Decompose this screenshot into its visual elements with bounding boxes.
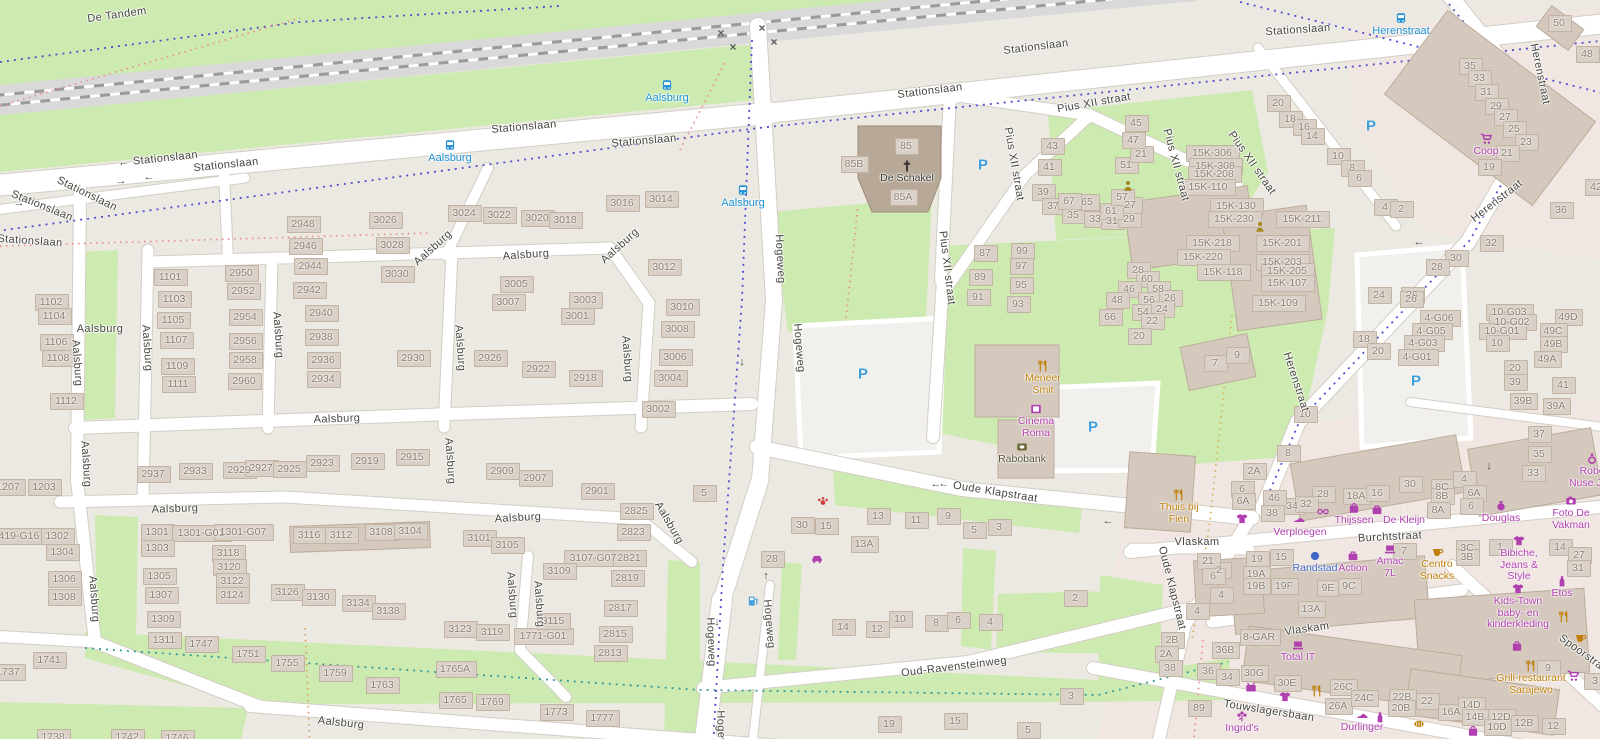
house-number: 2901 <box>585 485 608 497</box>
house-number: 1311 <box>153 634 176 646</box>
house-number: 9C <box>1342 580 1355 592</box>
poi-label: Foto DeVakman <box>1552 508 1590 531</box>
house-number: 2815 <box>603 628 626 640</box>
house-number: 1302 <box>45 530 68 542</box>
house-number: 41 <box>1043 161 1055 173</box>
house-number: 2918 <box>573 372 596 384</box>
street-label: Aalsburg <box>531 580 546 627</box>
street-label: Pius XII straat <box>1056 91 1131 116</box>
jewel-icon <box>1586 453 1599 466</box>
house-number: 15K-109 <box>1258 297 1298 309</box>
poi-label-line: Fien <box>1159 514 1198 526</box>
poi-label-line: Etos <box>1551 588 1572 600</box>
house-number: 3119 <box>481 626 504 638</box>
poi-label: RobeNuse Juw <box>1569 466 1600 489</box>
house-number: 3101 <box>467 532 490 544</box>
house-number: 2929 <box>227 464 250 476</box>
house-number: 1309 <box>151 613 174 625</box>
cup-icon <box>1431 546 1444 559</box>
cross-icon <box>901 160 914 173</box>
house-number: 85B <box>845 158 864 170</box>
bread-icon <box>1413 718 1426 731</box>
house-number: 3007 <box>496 296 519 308</box>
house-number: 12 <box>871 623 883 635</box>
house-number: 3 <box>996 521 1002 533</box>
poi-label: Thijssen <box>1334 515 1373 527</box>
house-number: 15K-211 <box>1283 213 1322 225</box>
house-number: 2A <box>1248 465 1261 477</box>
bus-stop-icon <box>737 184 750 197</box>
house-number: 60 <box>1141 273 1153 285</box>
house-number: 3130 <box>306 591 329 603</box>
house-number: 37 <box>1533 428 1545 440</box>
house-number: 15K-306 <box>1192 147 1232 159</box>
house-number: 1112 <box>55 395 77 407</box>
street-label: Aalsburg <box>452 324 467 371</box>
house-number: 19F <box>1275 580 1293 592</box>
house-number: 23 <box>1520 136 1532 148</box>
street-label: Pius XII straat <box>1002 126 1027 201</box>
poi-label: Kids-Townbaby- enkinderkleding <box>1487 596 1549 631</box>
street-label: Herenstraat <box>1528 42 1553 105</box>
house-number: 1108 <box>47 352 70 364</box>
house-number: 39 <box>1037 186 1049 198</box>
shirt-icon <box>1513 535 1526 548</box>
street-label: Stationslaan <box>1003 37 1069 57</box>
street-label: De Tandem <box>87 5 148 25</box>
oneway-arrow: ← <box>144 171 155 183</box>
glasses-icon <box>1317 505 1330 518</box>
house-number: 2819 <box>615 572 638 584</box>
house-number: 1747 <box>189 638 212 650</box>
house-number: 4 <box>1194 605 1200 617</box>
poi-label: De Kleijn <box>1383 515 1425 527</box>
shirt-icon <box>1279 691 1292 704</box>
house-number: 34 <box>1286 500 1298 512</box>
poi-label-line: Total IT <box>1281 652 1315 664</box>
house-number: 2938 <box>309 331 332 343</box>
house-number: 50 <box>1553 17 1565 29</box>
house-number: 49A <box>1538 353 1557 365</box>
house-number: 2956 <box>233 335 256 347</box>
house-number: 30 <box>796 519 808 531</box>
shirt-icon <box>1236 513 1249 526</box>
house-number: 9 <box>945 510 951 522</box>
house-number: 18 <box>1284 113 1296 125</box>
house-number: 3118 <box>217 547 240 559</box>
house-number: 3005 <box>504 278 527 290</box>
house-number: 15K-110 <box>1189 181 1228 193</box>
house-number: 1763 <box>370 679 393 691</box>
parking-icon: P <box>858 366 868 383</box>
house-number: 1738 <box>41 731 64 739</box>
heart-icon <box>1511 729 1524 739</box>
food-icon <box>1173 489 1186 502</box>
house-number: 22 <box>1146 315 1158 327</box>
house-number: 30 <box>1450 252 1462 264</box>
poi-label-line: Robe <box>1569 466 1600 478</box>
house-number: 10D <box>1487 721 1506 733</box>
house-number: 3024 <box>452 207 475 219</box>
house-number: 1759 <box>323 667 346 679</box>
house-number: 1106 <box>45 336 68 348</box>
house-number: 3018 <box>553 214 576 226</box>
bank-icon <box>1016 441 1029 454</box>
house-number: 1746 <box>165 732 188 739</box>
house-number: 5 <box>1025 724 1031 736</box>
poi-label: Randstad <box>1293 563 1338 575</box>
house-number: 3006 <box>663 351 686 363</box>
house-number: 21 <box>1202 555 1214 567</box>
house-number: 30G <box>1244 667 1264 679</box>
bottle-icon <box>1556 575 1569 588</box>
house-number: 14 <box>837 621 849 633</box>
house-number: 3116 <box>298 529 321 541</box>
house-number: 30E <box>1278 677 1297 689</box>
house-number: 15K-118 <box>1204 266 1243 278</box>
flower-icon <box>1236 710 1249 723</box>
house-number: 1308 <box>52 591 75 603</box>
house-number: 18A <box>1347 490 1366 502</box>
street-label: ← Stationslaan <box>117 149 198 169</box>
bus-stop-label: Aalsburg <box>645 92 688 104</box>
map-canvas[interactable]: 1102110411061108111211011103110511071109… <box>0 0 1600 739</box>
house-number: 9 <box>1234 349 1240 361</box>
house-number: 3 <box>1068 690 1074 702</box>
house-number: 3028 <box>380 239 403 251</box>
house-number: 16 <box>1371 487 1383 499</box>
poi-label: Durlinger <box>1341 722 1384 734</box>
house-number: 4-G06 <box>1424 312 1453 324</box>
house-number: 3122 <box>220 575 243 587</box>
house-number: 10 <box>1491 337 1503 349</box>
house-number: 8B <box>1436 490 1449 502</box>
poi-label-line: Thijssen <box>1334 515 1373 527</box>
house-number: 3124 <box>220 589 243 601</box>
person-icon <box>1122 180 1135 193</box>
parking-icon: P <box>1366 118 1376 135</box>
poi-label-line: 7L <box>1377 568 1404 580</box>
poi-label: CinemaRoma <box>1018 416 1054 439</box>
house-number: 8 <box>1285 447 1291 459</box>
poi-label: Etos <box>1551 588 1572 600</box>
poi-label: Thuis bijFien <box>1159 502 1198 525</box>
poi-label-line: Verploegen <box>1273 527 1326 539</box>
house-number: 36B <box>1216 644 1235 656</box>
laptop-icon <box>1384 543 1397 556</box>
dot-icon <box>1309 550 1322 563</box>
house-number: 61 <box>1105 205 1117 217</box>
laptop-icon <box>1292 639 1305 652</box>
house-number: 2813 <box>598 647 621 659</box>
house-number: 4-G03 <box>1408 337 1437 349</box>
house-number: 3026 <box>373 214 396 226</box>
street-label: Stationslaan <box>193 156 259 175</box>
street-label: Oude Klapstraat <box>1156 545 1188 631</box>
street-label: Hogeweg <box>791 323 807 373</box>
house-number: 3B <box>1461 551 1474 563</box>
street-label: Aalsburg <box>494 511 541 525</box>
house-number: 8-GAR <box>1243 631 1275 643</box>
house-number: 2952 <box>231 285 254 297</box>
house-number: 20B <box>1392 702 1411 714</box>
street-label: Aalsburg <box>270 311 285 358</box>
house-number: 19B <box>1247 580 1266 592</box>
house-number: 41 <box>1557 379 1569 391</box>
bag-icon <box>1348 502 1361 515</box>
house-number: 99 <box>1016 245 1028 257</box>
house-number: 15K-205 <box>1267 265 1307 277</box>
house-number: 8A <box>1432 504 1445 516</box>
house-number: 2934 <box>311 373 334 385</box>
house-number: 4 <box>987 616 993 628</box>
street-label: Aalsburg <box>313 412 360 426</box>
street-label: Stationslaan <box>611 132 677 150</box>
house-number: 4 <box>1461 473 1467 485</box>
house-number: 1307 <box>149 589 172 601</box>
house-number: 12B <box>1515 717 1534 729</box>
house-number: 1111 <box>167 378 188 390</box>
house-number: 20 <box>1272 97 1284 109</box>
bus-stop-icon <box>661 79 674 92</box>
poi-label-line: Action <box>1338 563 1367 575</box>
house-number: 18 <box>1358 333 1370 345</box>
house-number: 1419-G16 <box>0 530 39 542</box>
bus-stop-icon <box>444 139 457 152</box>
poi-label-line: Roma <box>1018 428 1054 440</box>
house-number: 65 <box>1081 196 1093 208</box>
house-number: 37 <box>1047 200 1059 212</box>
house-number: 6 <box>1468 500 1474 512</box>
house-number: 4-G01 <box>1402 351 1431 363</box>
house-number: 31 <box>1480 86 1492 98</box>
house-number: 2923 <box>310 457 333 469</box>
house-number: 2825 <box>624 505 647 517</box>
food-icon <box>1525 660 1538 673</box>
house-number: 1306 <box>52 573 75 585</box>
house-number: 95 <box>1015 279 1027 291</box>
house-number: 3120 <box>217 561 240 573</box>
house-number: 3016 <box>610 197 633 209</box>
house-number: 15K-230 <box>1214 213 1254 225</box>
house-number: 1771-G01 <box>520 630 567 642</box>
poi-label: Action <box>1338 563 1367 575</box>
book-icon <box>1398 502 1411 515</box>
house-number: 3003 <box>573 294 596 306</box>
house-number: 20 <box>1509 362 1521 374</box>
house-number: 1107 <box>165 334 188 346</box>
street-label: Hogeweg <box>761 599 777 649</box>
oneway-arrow: → <box>116 175 127 187</box>
house-number: 2 <box>1398 203 1404 215</box>
house-number: 3138 <box>376 605 399 617</box>
house-number: 2940 <box>309 307 332 319</box>
house-number: 91 <box>972 291 984 303</box>
bag-icon <box>1511 640 1524 653</box>
house-number: 28 <box>1431 261 1443 273</box>
house-number: 31 <box>1572 562 1584 574</box>
poi-label: Bibiche,Jeans &Style <box>1500 548 1538 583</box>
house-number: 6 <box>1239 483 1245 495</box>
house-number: 51 <box>1120 159 1132 171</box>
house-number: 15K-220 <box>1183 251 1223 263</box>
house-number: 48 <box>1111 294 1123 306</box>
house-number: 3022 <box>487 209 510 221</box>
parking-icon: P <box>1088 419 1098 436</box>
house-number: 49D <box>1558 311 1577 323</box>
house-number: 26A <box>1329 700 1348 712</box>
house-number: 8 <box>1349 162 1355 174</box>
street-label: Pius XII straat <box>937 230 958 305</box>
poi-label-line: Ingrid's <box>1225 723 1259 735</box>
suitcase-icon <box>1371 504 1384 517</box>
house-number: 39 <box>1509 376 1521 388</box>
street-label: Herenstraat <box>1469 177 1525 225</box>
oneway-arrow: ← <box>1414 236 1425 248</box>
house-number: 13 <box>872 510 884 522</box>
house-number: 14B <box>1466 711 1485 723</box>
house-number: 3126 <box>275 586 298 598</box>
house-number: 2937 <box>141 468 164 480</box>
house-number: 3012 <box>652 261 675 273</box>
house-number: 1303 <box>145 542 168 554</box>
house-number: 2954 <box>233 311 256 323</box>
bottle-icon <box>1374 711 1387 724</box>
poi-label: Amac7L <box>1377 556 1404 579</box>
street-label: Aalsburg <box>86 575 101 622</box>
oneway-arrow: ↓ <box>1486 460 1492 472</box>
house-number: 2919 <box>355 455 378 467</box>
paw-icon <box>817 495 830 508</box>
house-number: 4-G05 <box>1416 325 1445 337</box>
poi-label-line: Foto De <box>1552 508 1590 520</box>
film-icon <box>1030 403 1043 416</box>
house-number: 19 <box>883 718 895 730</box>
house-number: 12 <box>1547 720 1559 732</box>
house-number: 15K-218 <box>1192 237 1232 249</box>
house-number: 1104 <box>43 310 66 322</box>
house-number: 3014 <box>649 193 672 205</box>
poi-label: Grill-restaurantSarajewo <box>1496 673 1565 696</box>
house-number: 46 <box>1123 283 1135 295</box>
railway-crossing-icon: × <box>717 26 724 40</box>
poi-label: Rabobank <box>998 454 1046 466</box>
oneway-arrow: ← <box>1103 515 1114 527</box>
oneway-arrow: ↓ <box>714 616 720 628</box>
poi-label-line: Kids-Town <box>1487 596 1549 608</box>
house-number: 3008 <box>665 323 688 335</box>
house-number: 1755 <box>275 657 298 669</box>
house-number: 46 <box>1268 492 1280 504</box>
house-number: 2933 <box>183 465 206 477</box>
house-number: 1773 <box>544 706 567 718</box>
poi-label-line: Meneer <box>1025 373 1061 385</box>
house-number: 8 <box>933 617 939 629</box>
street-label: Stationslaan <box>491 118 557 136</box>
street-label: Aalsburg <box>652 500 686 546</box>
street-label: Stationslaan <box>1265 22 1331 39</box>
house-number: 87 <box>979 247 991 259</box>
house-number: 56 <box>1143 294 1155 306</box>
house-number: 6 <box>1356 172 1362 184</box>
house-number: 38 <box>1266 507 1278 519</box>
bus-stop-label: Aalsburg <box>428 152 471 164</box>
house-number: 57 <box>1116 191 1128 203</box>
house-number: 3002 <box>646 403 669 415</box>
person-icon <box>1254 221 1267 234</box>
house-number: 3001 <box>565 310 588 322</box>
house-number: 2817 <box>608 602 631 614</box>
oneway-arrow: → <box>14 197 25 209</box>
poi-label-line: Durlinger <box>1341 722 1384 734</box>
poi-label-line: Bibiche, <box>1500 548 1538 560</box>
house-number: 2823 <box>621 526 644 538</box>
house-number: 2915 <box>400 451 423 463</box>
house-number: 1737 <box>0 666 20 678</box>
street-label: Aalsburg <box>69 339 84 386</box>
house-number: 6A <box>1237 495 1250 507</box>
poi-label: Douglas <box>1482 513 1521 525</box>
poi-label-line: Nuse Juw <box>1569 478 1600 490</box>
poi-label-line: Randstad <box>1293 563 1338 575</box>
street-label: Aalsburg <box>502 247 549 262</box>
house-number: 19 <box>1483 161 1495 173</box>
house-number: 24C <box>1354 692 1373 704</box>
street-label: Hogeweg <box>714 710 728 739</box>
house-number: 1105 <box>162 314 185 326</box>
house-number: 97 <box>1015 260 1027 272</box>
house-number: 2942 <box>297 284 320 296</box>
bus-stop-label: Aalsburg <box>721 197 764 209</box>
house-number: 10-G01 <box>1484 325 1519 337</box>
house-number: 35 <box>1067 209 1079 221</box>
house-number: 1777 <box>590 712 613 724</box>
house-number: 1751 <box>236 648 259 660</box>
house-number: 15 <box>820 520 832 532</box>
oneway-arrow: ↑ <box>763 570 769 582</box>
bag-icon <box>1467 725 1480 738</box>
camera-icon <box>1565 495 1578 508</box>
house-number: 3112 <box>330 529 353 541</box>
parking-icon: P <box>1411 373 1421 390</box>
house-number: 14 <box>1306 130 1318 142</box>
house-number: 14 <box>1554 541 1566 553</box>
poi-label: Verploegen <box>1273 527 1326 539</box>
house-number: 39B <box>1514 395 1533 407</box>
house-number: 10 <box>894 613 906 625</box>
house-number: 3108 <box>369 526 392 538</box>
house-number: 2 <box>1072 592 1078 604</box>
house-number: 1304 <box>50 546 73 558</box>
house-number: 2B <box>1166 634 1179 646</box>
house-number: 89 <box>1193 702 1205 714</box>
house-number: 1305 <box>147 570 170 582</box>
house-number: 2925 <box>277 463 300 475</box>
cup-icon <box>1574 632 1587 645</box>
street-label: Aalsburg <box>78 440 93 487</box>
bus-stop-label: Herenstraat <box>1372 25 1429 37</box>
house-number: 2958 <box>233 354 256 366</box>
house-number: 1103 <box>163 293 186 305</box>
house-number: 1301-G07 <box>220 526 267 538</box>
oneway-arrow: ← <box>931 478 942 490</box>
house-number: 3004 <box>658 372 681 384</box>
house-number: 35 <box>1533 448 1545 460</box>
street-label: Herenstraat <box>1281 351 1312 414</box>
house-number: 1101 <box>159 271 182 283</box>
house-number: 26 <box>1405 293 1417 305</box>
house-number: 1301-G01 <box>178 527 225 539</box>
